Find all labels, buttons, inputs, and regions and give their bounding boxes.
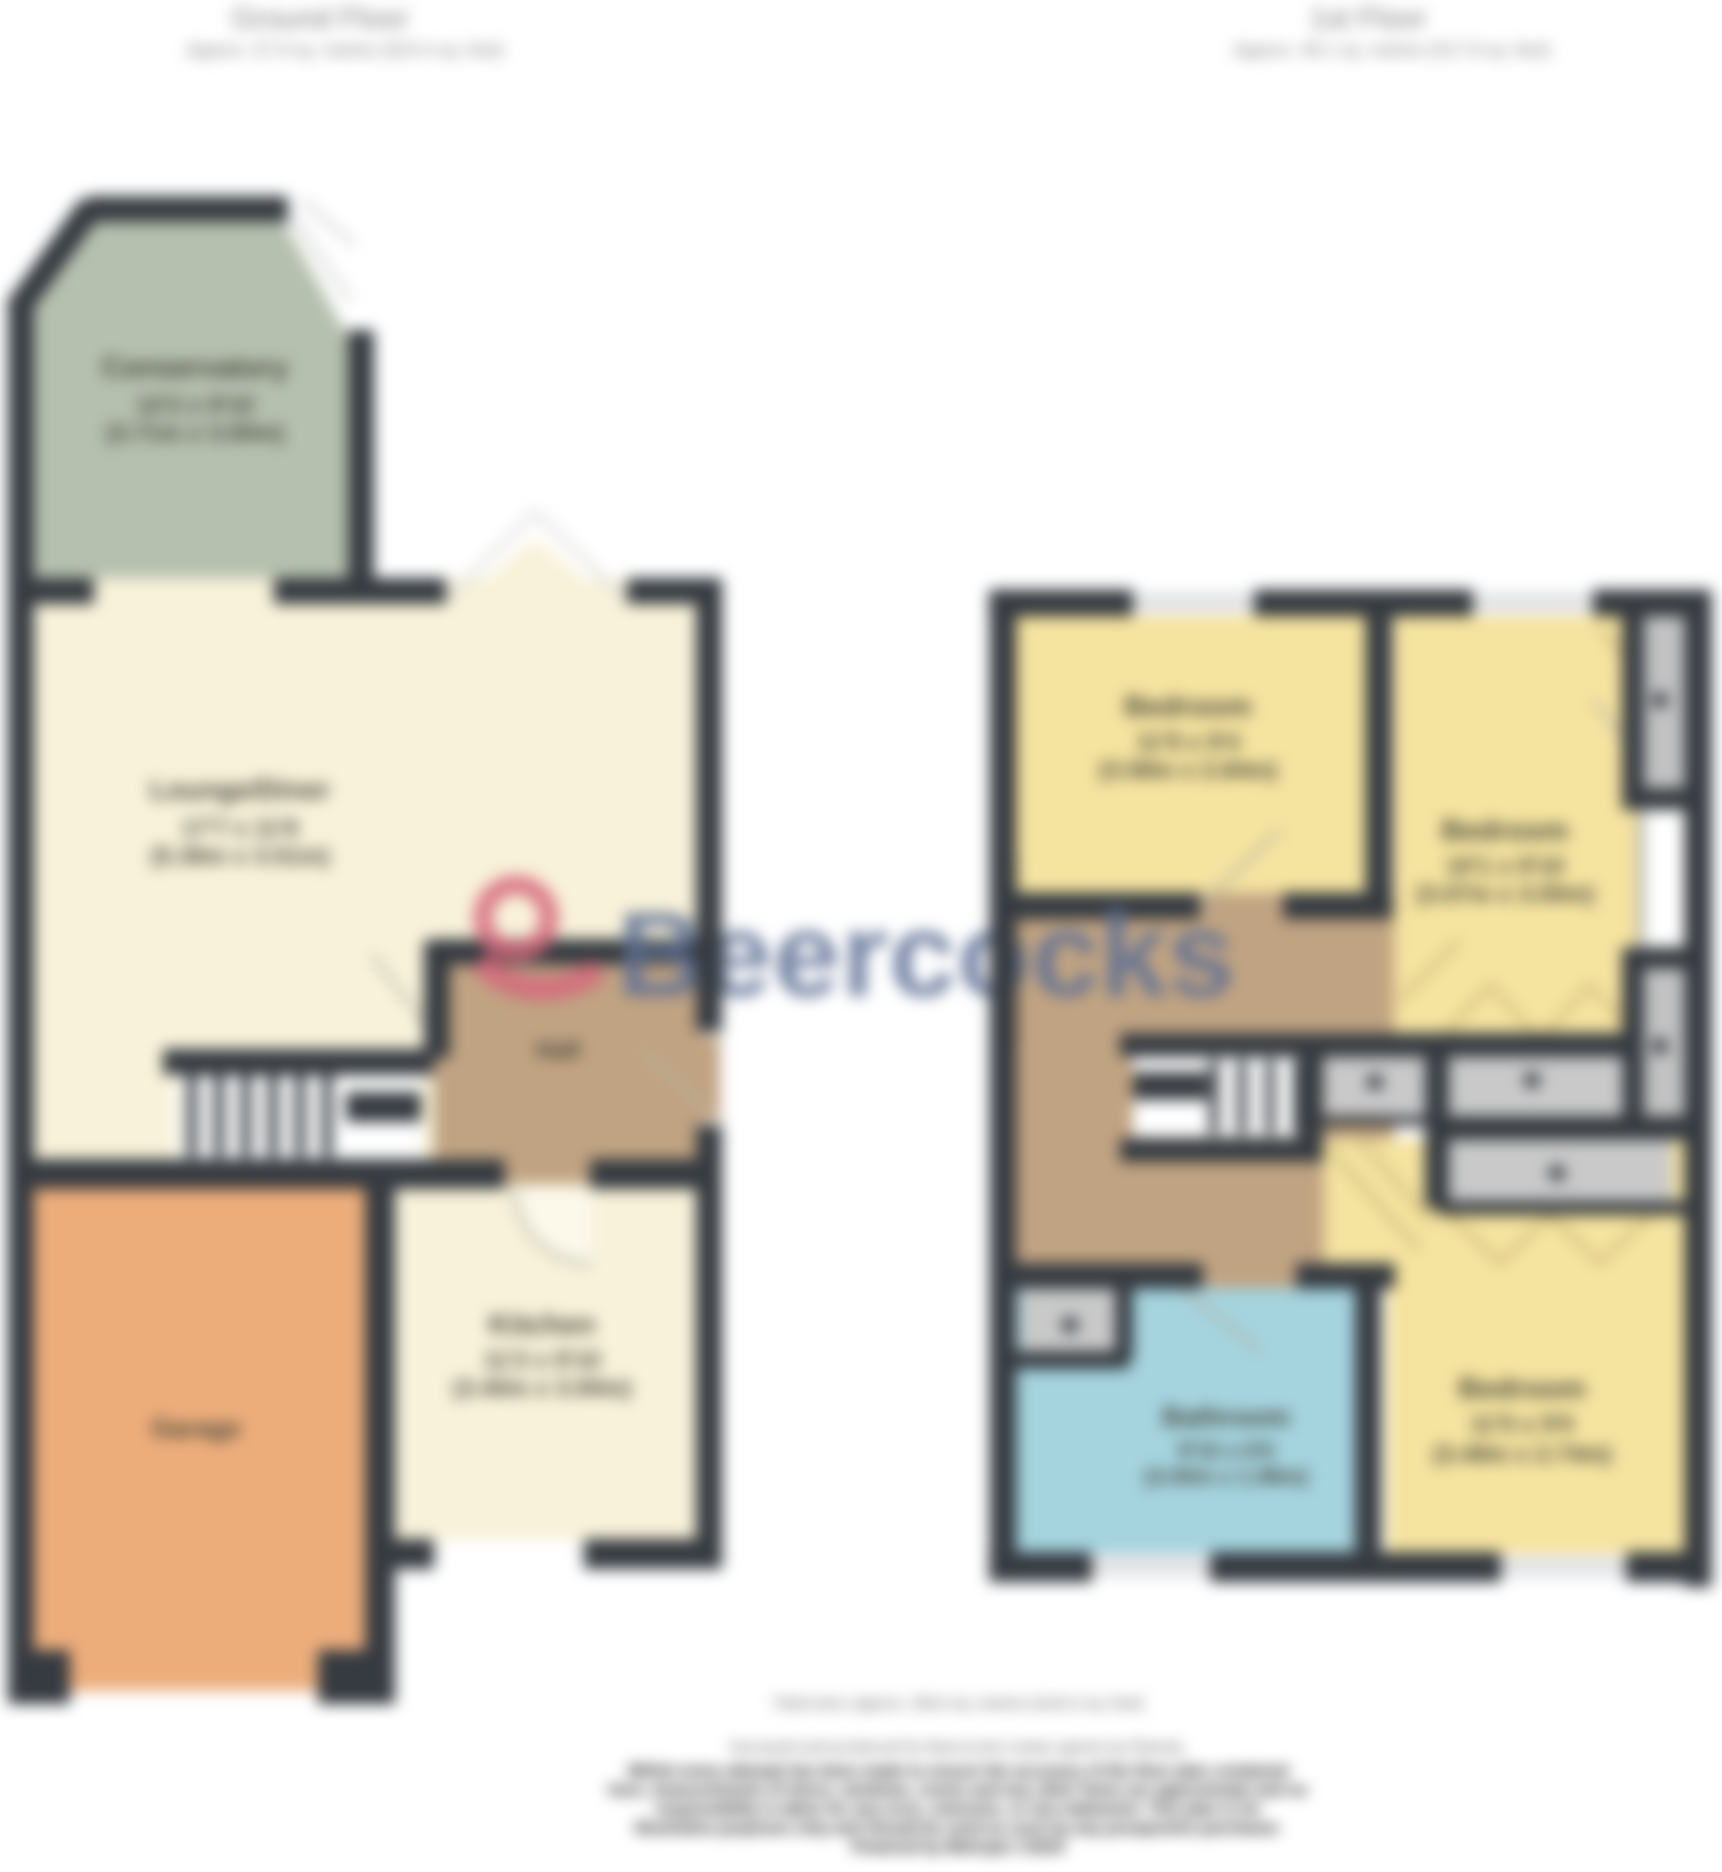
svg-text:Approx. 48.1 sq. metres (517.8: Approx. 48.1 sq. metres (517.8 sq. feet) <box>1233 40 1550 60</box>
svg-text:(5.36m x 3.51m): (5.36m x 3.51m) <box>151 843 330 870</box>
svg-text:illustrative purposes only and: illustrative purposes only and should be… <box>634 1820 1281 1837</box>
svg-text:Kitchen: Kitchen <box>489 1309 595 1341</box>
svg-text:here, measurements of doors, w: here, measurements of doors, windows, ro… <box>609 1782 1308 1799</box>
svg-text:(3.48m x 2.74m): (3.48m x 2.74m) <box>1433 1441 1612 1468</box>
svg-text:Lounge/Diner: Lounge/Diner <box>150 774 331 805</box>
svg-text:Garage: Garage <box>151 1413 241 1443</box>
svg-text:responsibility is taken for an: responsibility is taken for any error, o… <box>655 1801 1261 1818</box>
svg-text:Whilst every attempt has been: Whilst every attempt has been made to en… <box>628 1763 1289 1780</box>
svg-text:17'7 x 11'6: 17'7 x 11'6 <box>182 815 299 842</box>
svg-text:9'10 x 6'6: 9'10 x 6'6 <box>1178 1438 1274 1463</box>
svg-text:Bedroom: Bedroom <box>1124 691 1251 723</box>
svg-text:(3.00m x 1.98m): (3.00m x 1.98m) <box>1144 1464 1308 1489</box>
svg-text:Total area: approx. 106.0 sq.: Total area: approx. 106.0 sq. metres (11… <box>773 1695 1143 1712</box>
svg-text:Bedroom: Bedroom <box>1458 1373 1585 1405</box>
svg-text:(3.71m x 3.00m): (3.71m x 3.00m) <box>106 420 285 447</box>
svg-text:Powered by Metropix ©2024: Powered by Metropix ©2024 <box>852 1839 1065 1856</box>
svg-text:Hall: Hall <box>536 1037 580 1064</box>
svg-text:Conservatory: Conservatory <box>102 352 289 384</box>
svg-text:12'2 x 9'10: 12'2 x 9'10 <box>136 392 254 419</box>
svg-text:11'2 x 9'10: 11'2 x 9'10 <box>484 1347 601 1374</box>
svg-text:11'9 x 9'4: 11'9 x 9'4 <box>1136 729 1240 756</box>
svg-text:(3.07m x 3.00m): (3.07m x 3.00m) <box>1416 881 1595 908</box>
svg-text:11'5 x 9'0: 11'5 x 9'0 <box>1470 1411 1574 1438</box>
svg-text:Approx. 57.9 sq. metres (623.4: Approx. 57.9 sq. metres (623.4 sq. feet) <box>186 40 503 60</box>
svg-text:10'1 x 9'10: 10'1 x 9'10 <box>1446 853 1564 880</box>
svg-text:Ground Floor: Ground Floor <box>232 2 409 35</box>
svg-text:Bathroom: Bathroom <box>1162 1402 1290 1432</box>
svg-text:1st Floor: 1st Floor <box>1310 2 1427 35</box>
svg-text:Surveyed and produced for Beer: Surveyed and produced for Beercocks esta… <box>730 1739 1187 1756</box>
svg-text:Bedroom: Bedroom <box>1441 815 1568 847</box>
svg-text:(3.40m x 3.00m): (3.40m x 3.00m) <box>453 1375 632 1402</box>
svg-text:(3.58m x 2.84m): (3.58m x 2.84m) <box>1099 757 1278 784</box>
